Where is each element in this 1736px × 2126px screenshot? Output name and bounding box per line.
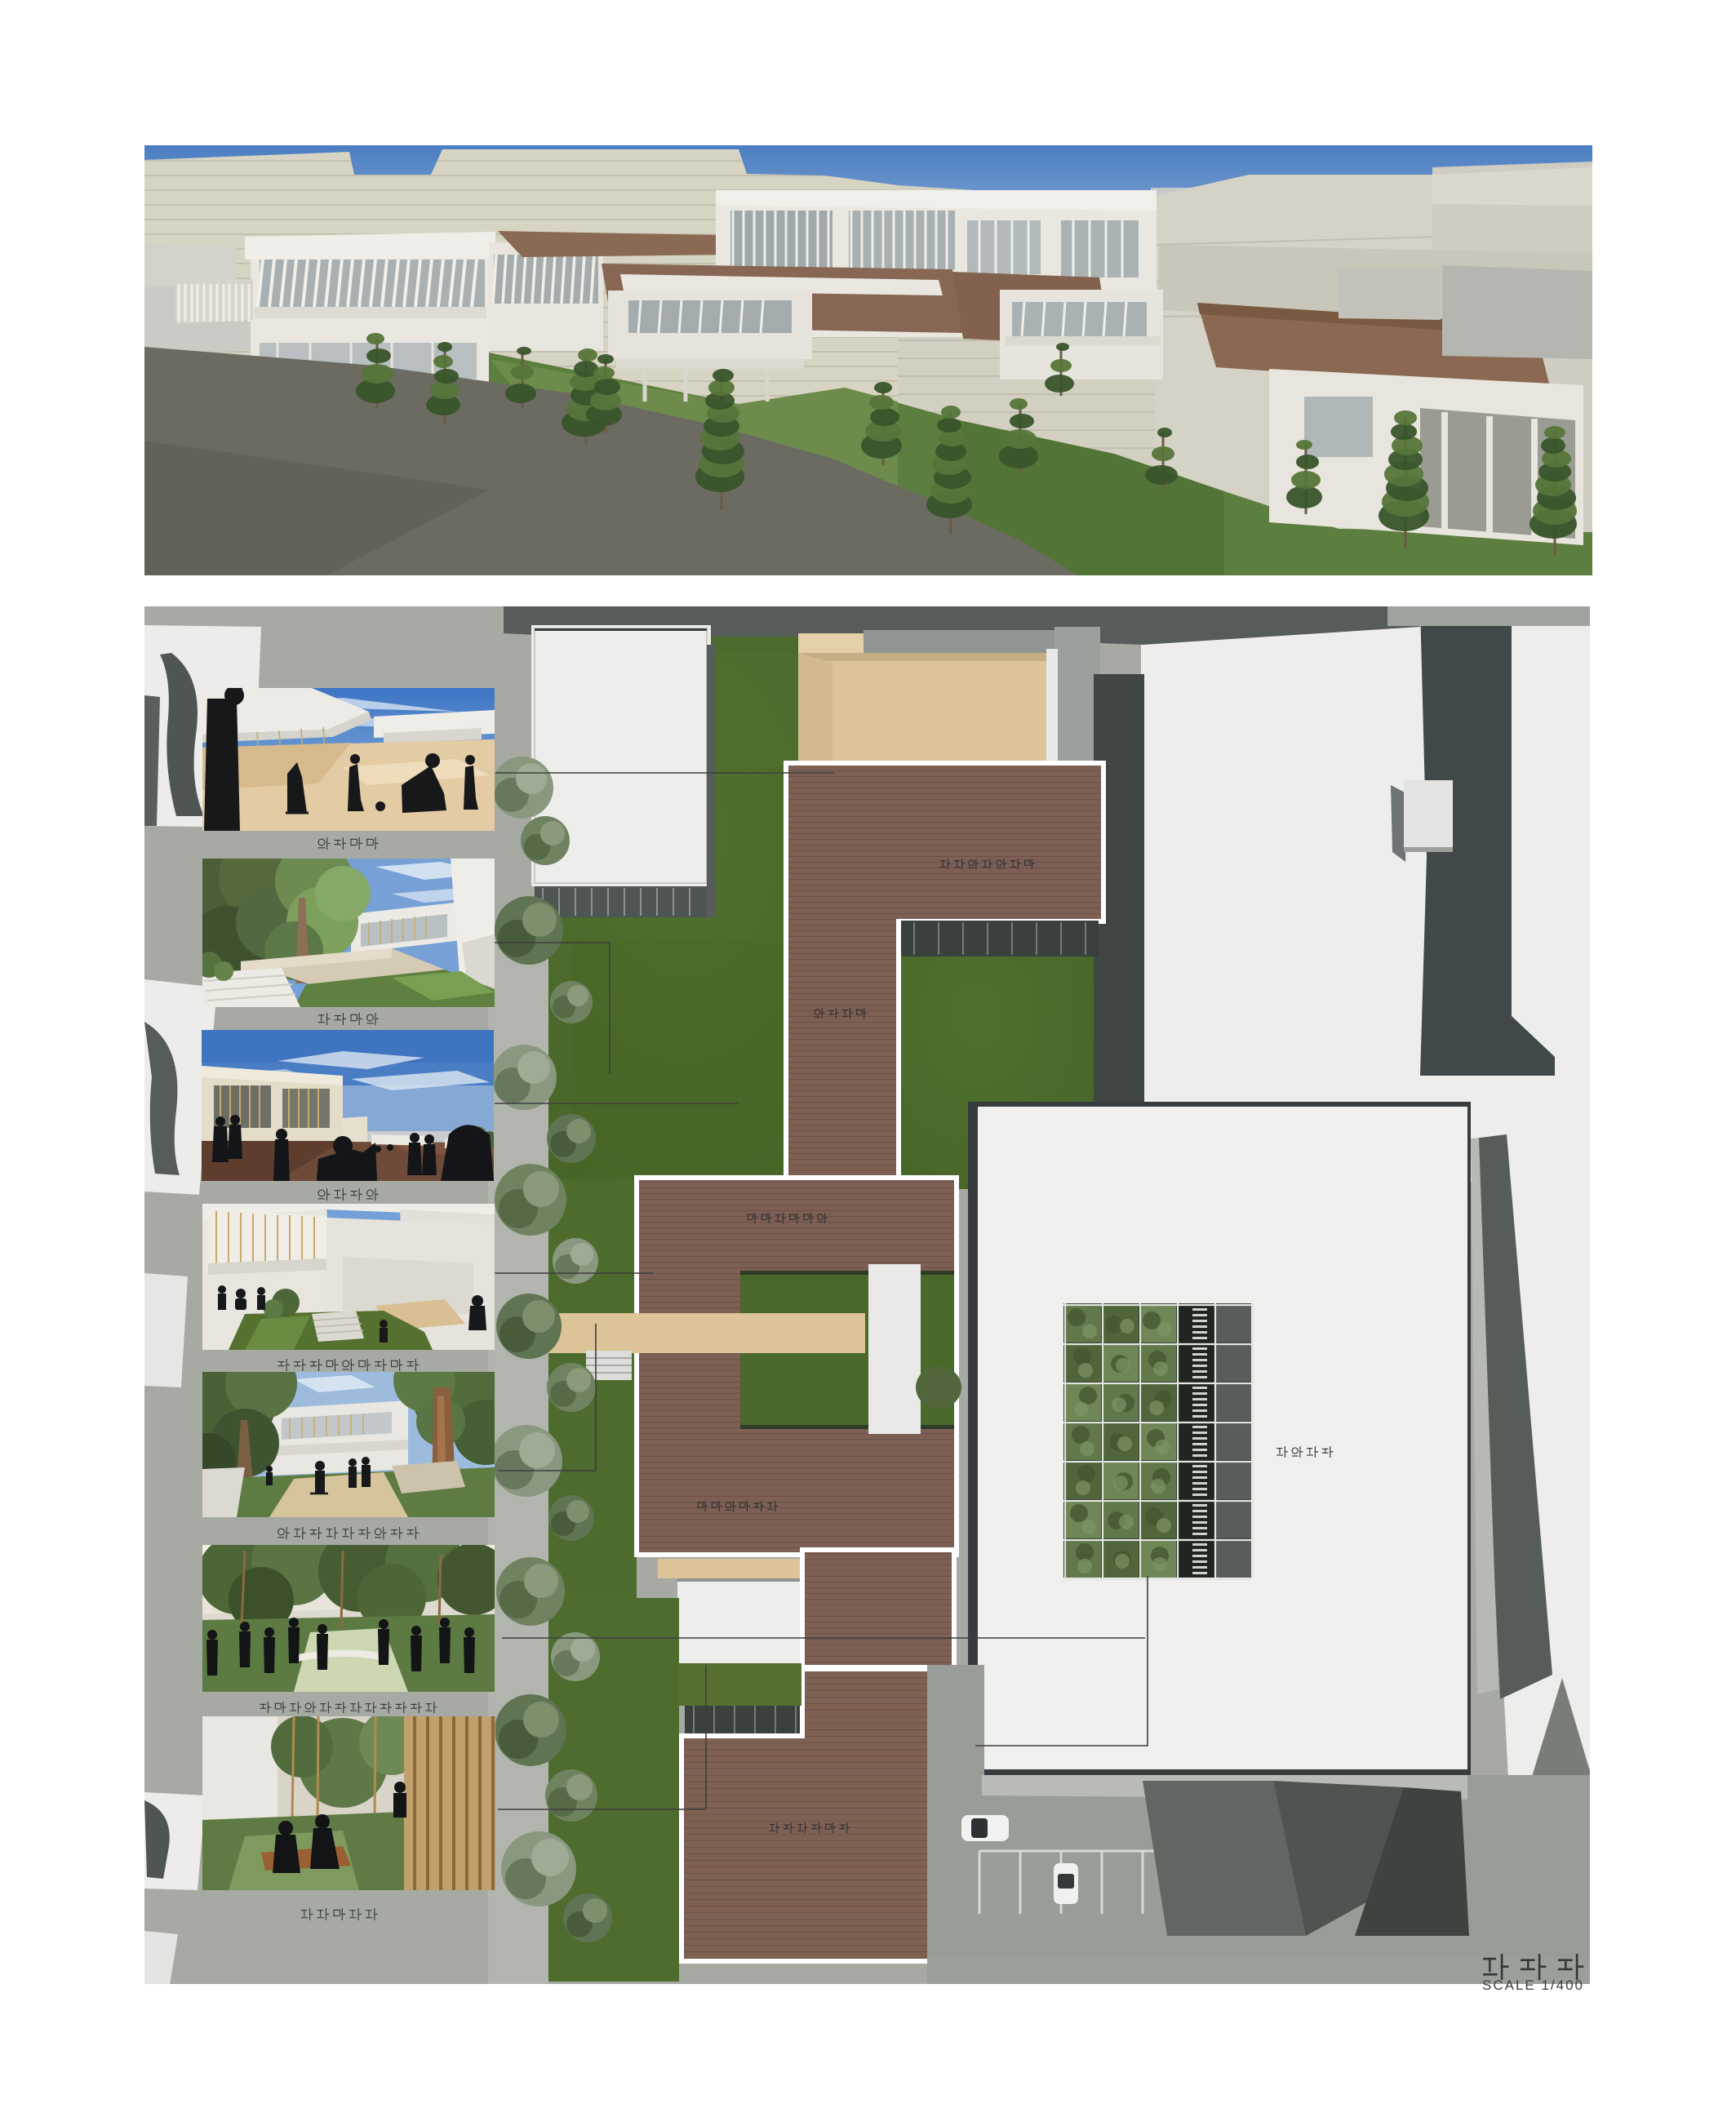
svg-text:SCALE 1/400: SCALE 1/400 [1482, 1977, 1584, 1993]
